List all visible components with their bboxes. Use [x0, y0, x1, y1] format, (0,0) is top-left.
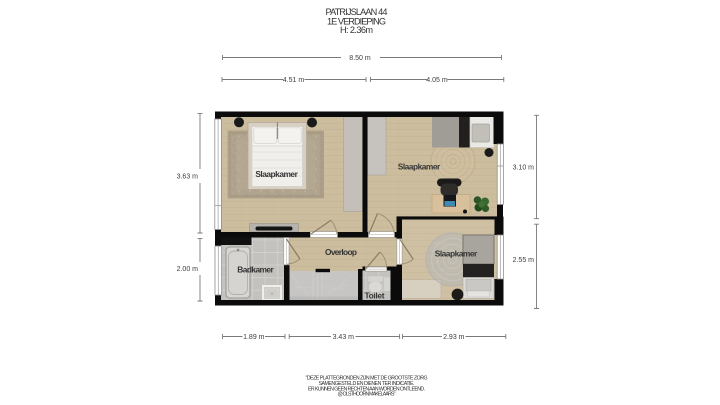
svg-text:H: 2.36m: H: 2.36m	[340, 25, 373, 35]
svg-text:4.05 m: 4.05 m	[426, 77, 448, 84]
svg-text:2.00 m: 2.00 m	[177, 266, 199, 273]
svg-text:4.51 m: 4.51 m	[283, 77, 305, 84]
svg-text:3.10 m: 3.10 m	[513, 165, 535, 172]
svg-text:1.89 m: 1.89 m	[243, 334, 265, 341]
svg-text:Slaapkamer: Slaapkamer	[435, 248, 478, 258]
svg-text:Overloop: Overloop	[325, 247, 357, 257]
svg-text:2.55 m: 2.55 m	[513, 257, 535, 264]
svg-text:Toilet: Toilet	[365, 290, 385, 300]
svg-text:3.43 m: 3.43 m	[333, 334, 355, 341]
svg-text:2.93 m: 2.93 m	[443, 334, 465, 341]
svg-text:Slaapkamer: Slaapkamer	[398, 162, 441, 172]
svg-text:8.50 m: 8.50 m	[349, 55, 371, 62]
svg-text:Badkamer: Badkamer	[237, 264, 274, 274]
svg-text:@ OLSTHOORN MAKELAARS": @ OLSTHOORN MAKELAARS"	[338, 391, 396, 397]
svg-text:3.63 m: 3.63 m	[177, 174, 199, 181]
svg-text:Slaapkamer: Slaapkamer	[255, 169, 298, 179]
